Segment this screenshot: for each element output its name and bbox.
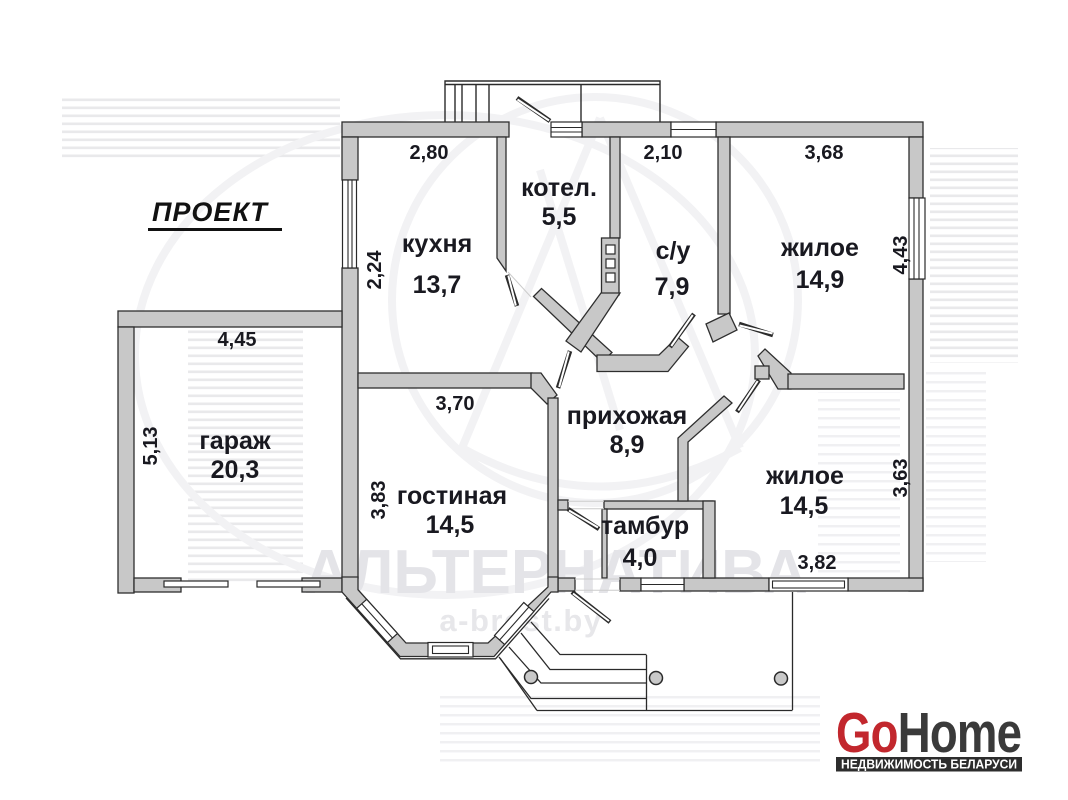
svg-text:гостиная: гостиная xyxy=(397,482,507,510)
svg-text:5,13: 5,13 xyxy=(140,427,162,466)
svg-text:3,63: 3,63 xyxy=(890,459,912,498)
svg-text:13,7: 13,7 xyxy=(413,271,462,299)
svg-text:кухня: кухня xyxy=(402,230,472,258)
svg-text:2,80: 2,80 xyxy=(410,142,449,164)
svg-text:5,5: 5,5 xyxy=(542,203,577,231)
svg-text:3,82: 3,82 xyxy=(798,552,837,574)
svg-text:ПРОЕКТ: ПРОЕКТ xyxy=(152,197,269,227)
svg-text:4,0: 4,0 xyxy=(623,544,658,572)
svg-text:2,24: 2,24 xyxy=(364,250,386,290)
svg-text:14,9: 14,9 xyxy=(796,266,845,294)
svg-text:14,5: 14,5 xyxy=(426,511,475,539)
svg-text:2,10: 2,10 xyxy=(644,142,683,164)
svg-text:жилое: жилое xyxy=(780,234,859,262)
svg-text:4,43: 4,43 xyxy=(890,236,912,275)
svg-text:НЕДВИЖИМОСТЬ БЕЛАРУСИ: НЕДВИЖИМОСТЬ БЕЛАРУСИ xyxy=(841,758,1017,772)
svg-text:GoHome: GoHome xyxy=(836,700,1021,764)
svg-text:прихожая: прихожая xyxy=(567,402,687,430)
svg-text:3,83: 3,83 xyxy=(368,481,390,520)
svg-text:котел.: котел. xyxy=(521,174,597,202)
svg-text:с/у: с/у xyxy=(656,237,691,265)
svg-text:жилое: жилое xyxy=(765,462,844,490)
svg-text:4,45: 4,45 xyxy=(218,329,257,351)
svg-text:8,9: 8,9 xyxy=(610,431,645,459)
svg-text:тамбур: тамбур xyxy=(601,512,689,540)
svg-text:14,5: 14,5 xyxy=(780,492,829,520)
svg-text:7,9: 7,9 xyxy=(655,273,690,301)
svg-text:3,70: 3,70 xyxy=(436,393,475,415)
svg-text:3,68: 3,68 xyxy=(805,142,844,164)
svg-text:гараж: гараж xyxy=(199,427,270,455)
svg-text:20,3: 20,3 xyxy=(211,456,260,484)
